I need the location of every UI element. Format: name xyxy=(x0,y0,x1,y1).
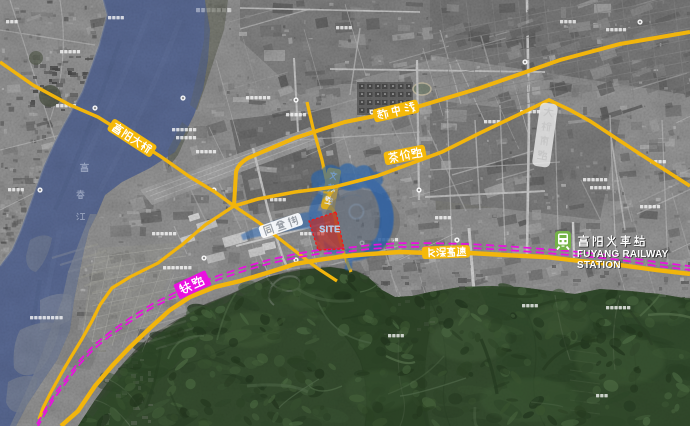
svg-text:STATION: STATION xyxy=(577,260,621,271)
svg-text:FUYANG RAILWAY: FUYANG RAILWAY xyxy=(577,249,669,260)
svg-text:SITE: SITE xyxy=(319,224,340,234)
